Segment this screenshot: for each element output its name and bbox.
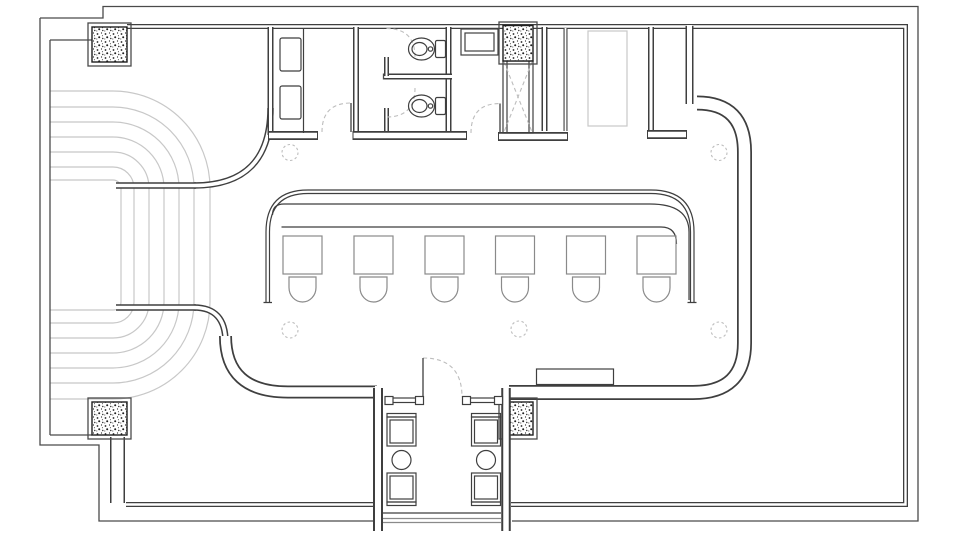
bar-stool bbox=[360, 277, 387, 302]
bar-table bbox=[283, 236, 322, 274]
door-swings bbox=[322, 29, 500, 398]
bar-table bbox=[567, 236, 606, 274]
corridor-table bbox=[588, 31, 627, 126]
service-shaft bbox=[503, 61, 533, 133]
floor-plan bbox=[0, 0, 960, 542]
entry-vestibule bbox=[378, 386, 506, 532]
bar-table bbox=[496, 236, 535, 274]
outer-boundary-wall bbox=[40, 7, 918, 522]
columns bbox=[88, 22, 537, 439]
entry-chair bbox=[387, 414, 416, 447]
rail-post bbox=[463, 397, 471, 405]
terrace-contours bbox=[50, 91, 210, 399]
service-counter bbox=[461, 29, 498, 55]
bar-stool bbox=[573, 277, 600, 302]
sink-room-door bbox=[322, 103, 351, 132]
bar-table bbox=[354, 236, 393, 274]
entry-chair bbox=[387, 473, 416, 506]
bar-stool bbox=[502, 277, 529, 302]
entry-table bbox=[477, 451, 496, 470]
column-top-left bbox=[88, 23, 131, 66]
bar-table bbox=[637, 236, 676, 274]
bar-stool bbox=[431, 277, 458, 302]
bar-table bbox=[425, 236, 464, 274]
ceiling-markers bbox=[282, 145, 727, 339]
column-top-center bbox=[499, 22, 537, 64]
entry-table bbox=[392, 451, 411, 470]
column-bottom-left bbox=[88, 398, 131, 439]
corridor-door bbox=[471, 104, 500, 134]
rail-post bbox=[416, 397, 424, 405]
inner-boundary-wall bbox=[50, 27, 906, 505]
entry-chair bbox=[472, 414, 501, 447]
restroom-walls bbox=[268, 26, 687, 137]
bar-counter bbox=[264, 190, 697, 303]
bench bbox=[537, 369, 614, 385]
entry-chair bbox=[472, 473, 501, 506]
sink-counter bbox=[280, 28, 304, 133]
restroom-fixtures bbox=[280, 28, 446, 133]
rail-post bbox=[385, 397, 393, 405]
floor-plan-canvas bbox=[0, 0, 960, 542]
rail-post bbox=[495, 397, 503, 405]
bar-stool bbox=[289, 277, 316, 302]
bar-seating bbox=[283, 236, 676, 302]
bar-stool bbox=[643, 277, 670, 302]
vestibule-inner-door bbox=[423, 358, 462, 397]
